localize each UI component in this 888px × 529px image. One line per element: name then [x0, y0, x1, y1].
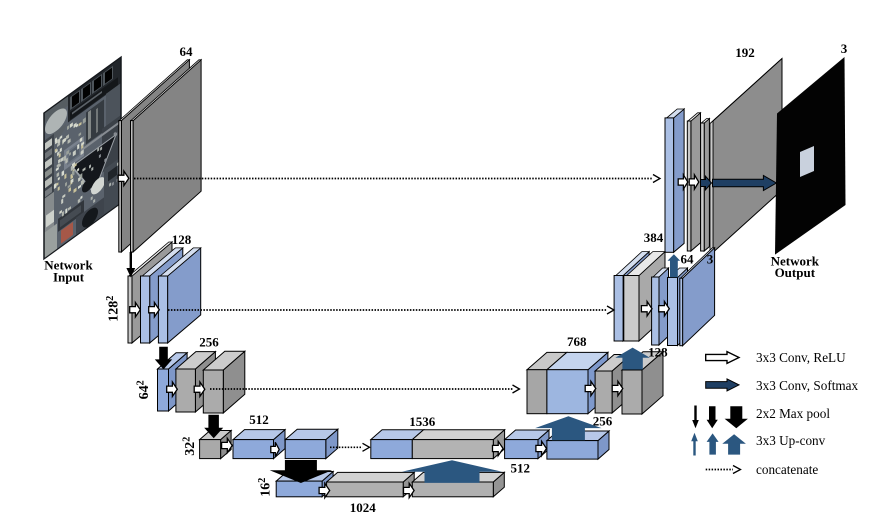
svg-text:128: 128: [172, 232, 192, 247]
svg-text:2x2 Max pool: 2x2 Max pool: [756, 406, 830, 421]
svg-text:128: 128: [648, 345, 668, 360]
svg-text:Input: Input: [53, 270, 85, 285]
svg-text:3: 3: [707, 252, 714, 267]
svg-text:642: 642: [136, 380, 153, 399]
svg-text:1024: 1024: [350, 500, 377, 515]
svg-text:3x3 Conv, Softmax: 3x3 Conv, Softmax: [756, 378, 858, 393]
svg-text:64: 64: [180, 44, 194, 59]
svg-text:512: 512: [249, 412, 269, 427]
svg-text:Output: Output: [775, 265, 816, 280]
svg-text:384: 384: [644, 230, 664, 245]
svg-text:3: 3: [841, 41, 848, 56]
svg-text:256: 256: [199, 335, 219, 350]
svg-text:192: 192: [735, 45, 755, 60]
svg-text:3x3 Up-conv: 3x3 Up-conv: [756, 433, 826, 448]
svg-text:512: 512: [510, 461, 530, 476]
svg-text:1536: 1536: [409, 414, 436, 429]
svg-text:322: 322: [182, 437, 199, 456]
svg-text:concatenate: concatenate: [756, 462, 818, 477]
svg-text:3x3 Conv, ReLU: 3x3 Conv, ReLU: [756, 350, 846, 365]
svg-text:64: 64: [681, 252, 695, 267]
svg-text:1282: 1282: [105, 296, 122, 322]
svg-text:768: 768: [567, 334, 587, 349]
svg-text:162: 162: [257, 478, 274, 497]
